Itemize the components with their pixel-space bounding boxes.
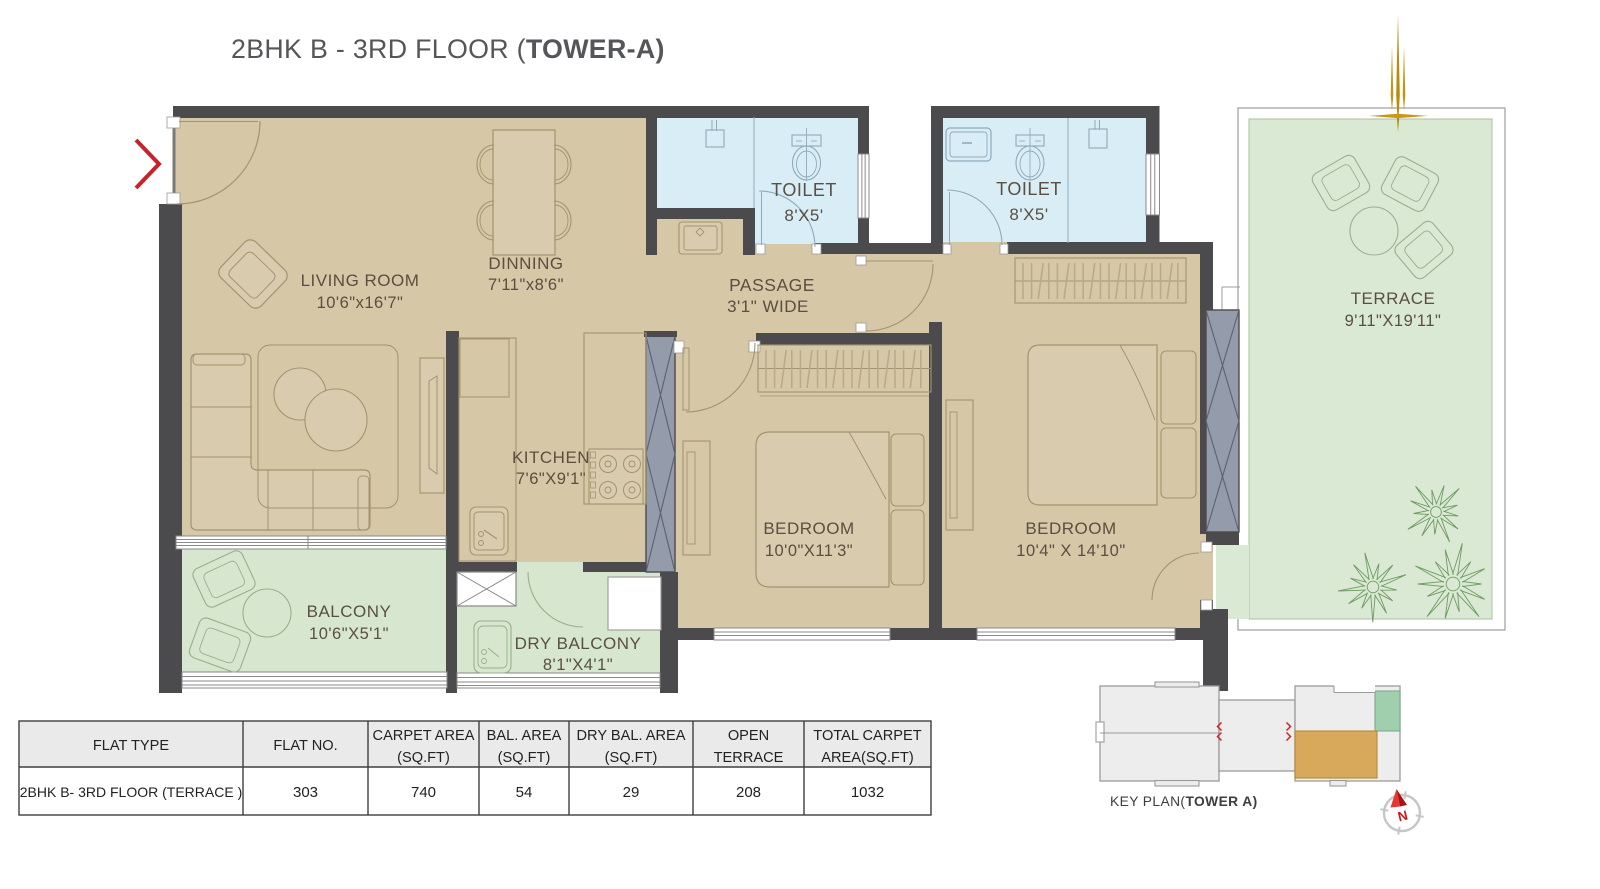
svg-text:KEY PLAN(TOWER A): KEY PLAN(TOWER A) <box>1110 794 1258 809</box>
svg-text:TOILET: TOILET <box>996 179 1062 199</box>
svg-text:BEDROOM: BEDROOM <box>1025 519 1116 538</box>
svg-text:8'X5': 8'X5' <box>1009 205 1048 224</box>
svg-text:BEDROOM: BEDROOM <box>763 519 854 538</box>
svg-text:LIVING ROOM: LIVING ROOM <box>301 271 420 290</box>
svg-text:OPEN: OPEN <box>728 728 769 744</box>
svg-text:10'4" X 14'10": 10'4" X 14'10" <box>1016 542 1125 560</box>
svg-text:3'1" WIDE: 3'1" WIDE <box>727 297 809 316</box>
svg-text:8'X5': 8'X5' <box>784 206 823 225</box>
svg-text:7'11"x8'6": 7'11"x8'6" <box>488 276 564 294</box>
svg-text:1032: 1032 <box>851 784 884 801</box>
svg-text:TERRACE: TERRACE <box>714 750 784 766</box>
svg-text:7'6"X9'1": 7'6"X9'1" <box>516 470 586 488</box>
svg-text:2BHK B - 3RD FLOOR (TOWER-A): 2BHK B - 3RD FLOOR (TOWER-A) <box>231 34 665 64</box>
svg-text:740: 740 <box>411 784 436 801</box>
svg-text:10'6"x16'7": 10'6"x16'7" <box>317 294 404 312</box>
svg-text:FLAT TYPE: FLAT TYPE <box>93 738 170 754</box>
svg-text:29: 29 <box>623 784 640 801</box>
svg-text:AREA(SQ.FT): AREA(SQ.FT) <box>821 750 913 766</box>
svg-text:208: 208 <box>736 784 761 801</box>
svg-text:PASSAGE: PASSAGE <box>729 275 815 295</box>
svg-text:BALCONY: BALCONY <box>307 602 392 621</box>
svg-text:FLAT NO.: FLAT NO. <box>273 738 337 754</box>
svg-text:9'11"X19'11": 9'11"X19'11" <box>1345 312 1442 330</box>
svg-text:BAL. AREA: BAL. AREA <box>487 728 562 744</box>
svg-text:(SQ.FT): (SQ.FT) <box>498 750 551 766</box>
svg-text:DRY BAL. AREA: DRY BAL. AREA <box>577 728 686 744</box>
svg-text:TOILET: TOILET <box>771 180 837 200</box>
svg-text:CARPET AREA: CARPET AREA <box>373 728 475 744</box>
svg-text:KITCHEN: KITCHEN <box>512 448 590 467</box>
svg-text:(SQ.FT): (SQ.FT) <box>397 750 450 766</box>
svg-text:DRY BALCONY: DRY BALCONY <box>515 634 642 653</box>
svg-text:2BHK B- 3RD FLOOR (TERRACE ): 2BHK B- 3RD FLOOR (TERRACE ) <box>20 784 242 800</box>
svg-text:TERRACE: TERRACE <box>1351 289 1436 308</box>
svg-text:54: 54 <box>516 784 533 801</box>
svg-text:DINNING: DINNING <box>488 254 563 273</box>
svg-text:10'6"X5'1": 10'6"X5'1" <box>309 625 389 643</box>
svg-text:10'0"X11'3": 10'0"X11'3" <box>765 542 853 560</box>
svg-text:8'1"X4'1": 8'1"X4'1" <box>543 656 613 674</box>
svg-text:TOTAL CARPET: TOTAL CARPET <box>813 728 921 744</box>
svg-text:303: 303 <box>293 784 318 801</box>
svg-text:N: N <box>1396 808 1409 825</box>
svg-text:(SQ.FT): (SQ.FT) <box>605 750 658 766</box>
